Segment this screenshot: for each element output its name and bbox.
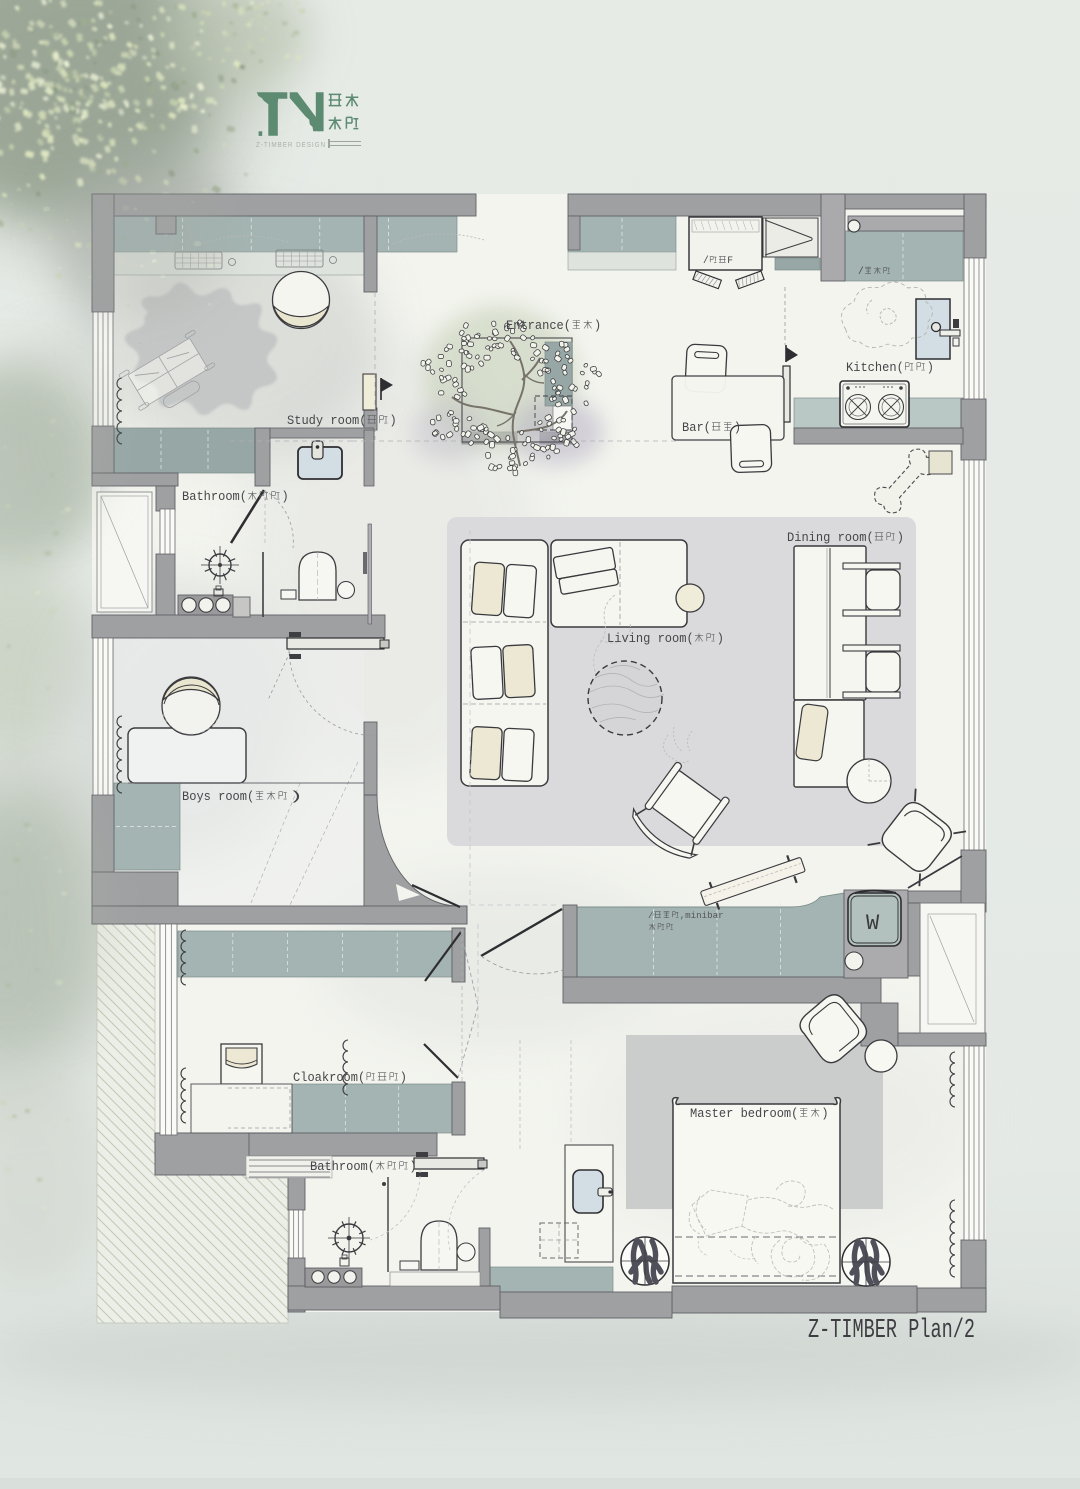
svg-text:): ) xyxy=(821,1107,828,1121)
svg-text:): ) xyxy=(927,361,934,375)
svg-text:): ) xyxy=(282,490,289,504)
svg-text:Entrance(: Entrance( xyxy=(506,319,571,333)
svg-text:Bathroom(: Bathroom( xyxy=(310,1160,375,1174)
svg-text:Bathroom(: Bathroom( xyxy=(182,490,247,504)
svg-text:Kitchen(: Kitchen( xyxy=(846,361,904,375)
svg-text:): ) xyxy=(734,421,741,435)
svg-text:): ) xyxy=(717,632,724,646)
svg-text:,minibar: ,minibar xyxy=(680,910,724,921)
svg-text:Cloakroom(: Cloakroom( xyxy=(293,1071,365,1085)
svg-text:Bar(: Bar( xyxy=(682,421,711,435)
svg-text:Z-TIMBER Plan/2: Z-TIMBER Plan/2 xyxy=(808,1316,975,1346)
svg-text:): ) xyxy=(410,1160,417,1174)
svg-text:W: W xyxy=(866,911,880,936)
svg-text:F: F xyxy=(727,256,733,267)
svg-text:): ) xyxy=(400,1071,407,1085)
svg-text:/: / xyxy=(858,266,864,278)
svg-text:Z-TIMBER DESIGN: Z-TIMBER DESIGN xyxy=(256,140,326,149)
svg-text:): ) xyxy=(289,790,303,804)
svg-text:): ) xyxy=(390,414,397,428)
svg-text:/: / xyxy=(648,910,654,921)
svg-text:): ) xyxy=(594,319,601,333)
svg-text:Study room(: Study room( xyxy=(287,414,367,428)
svg-text:Living room(: Living room( xyxy=(607,632,694,646)
svg-text:Dining room(: Dining room( xyxy=(787,531,874,545)
svg-text:/: / xyxy=(703,255,709,267)
svg-text:): ) xyxy=(897,531,904,545)
svg-text:Master bedroom(: Master bedroom( xyxy=(690,1107,798,1121)
svg-text:Boys room(: Boys room( xyxy=(182,790,254,804)
